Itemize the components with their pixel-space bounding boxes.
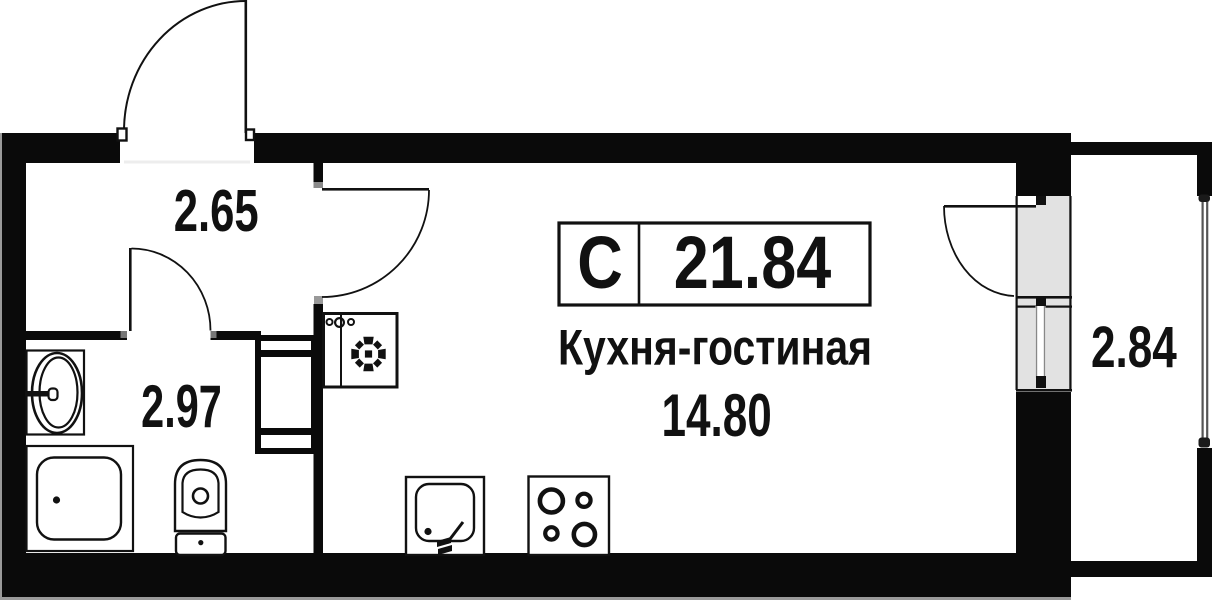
svg-text:2.97: 2.97: [141, 372, 222, 440]
svg-text:2.84: 2.84: [1091, 314, 1177, 379]
svg-text:С: С: [577, 221, 623, 304]
svg-text:21.84: 21.84: [674, 221, 831, 304]
svg-text:14.80: 14.80: [661, 382, 771, 449]
svg-text:Кухня-гостиная: Кухня-гостиная: [558, 320, 872, 376]
svg-text:2.65: 2.65: [174, 178, 259, 244]
